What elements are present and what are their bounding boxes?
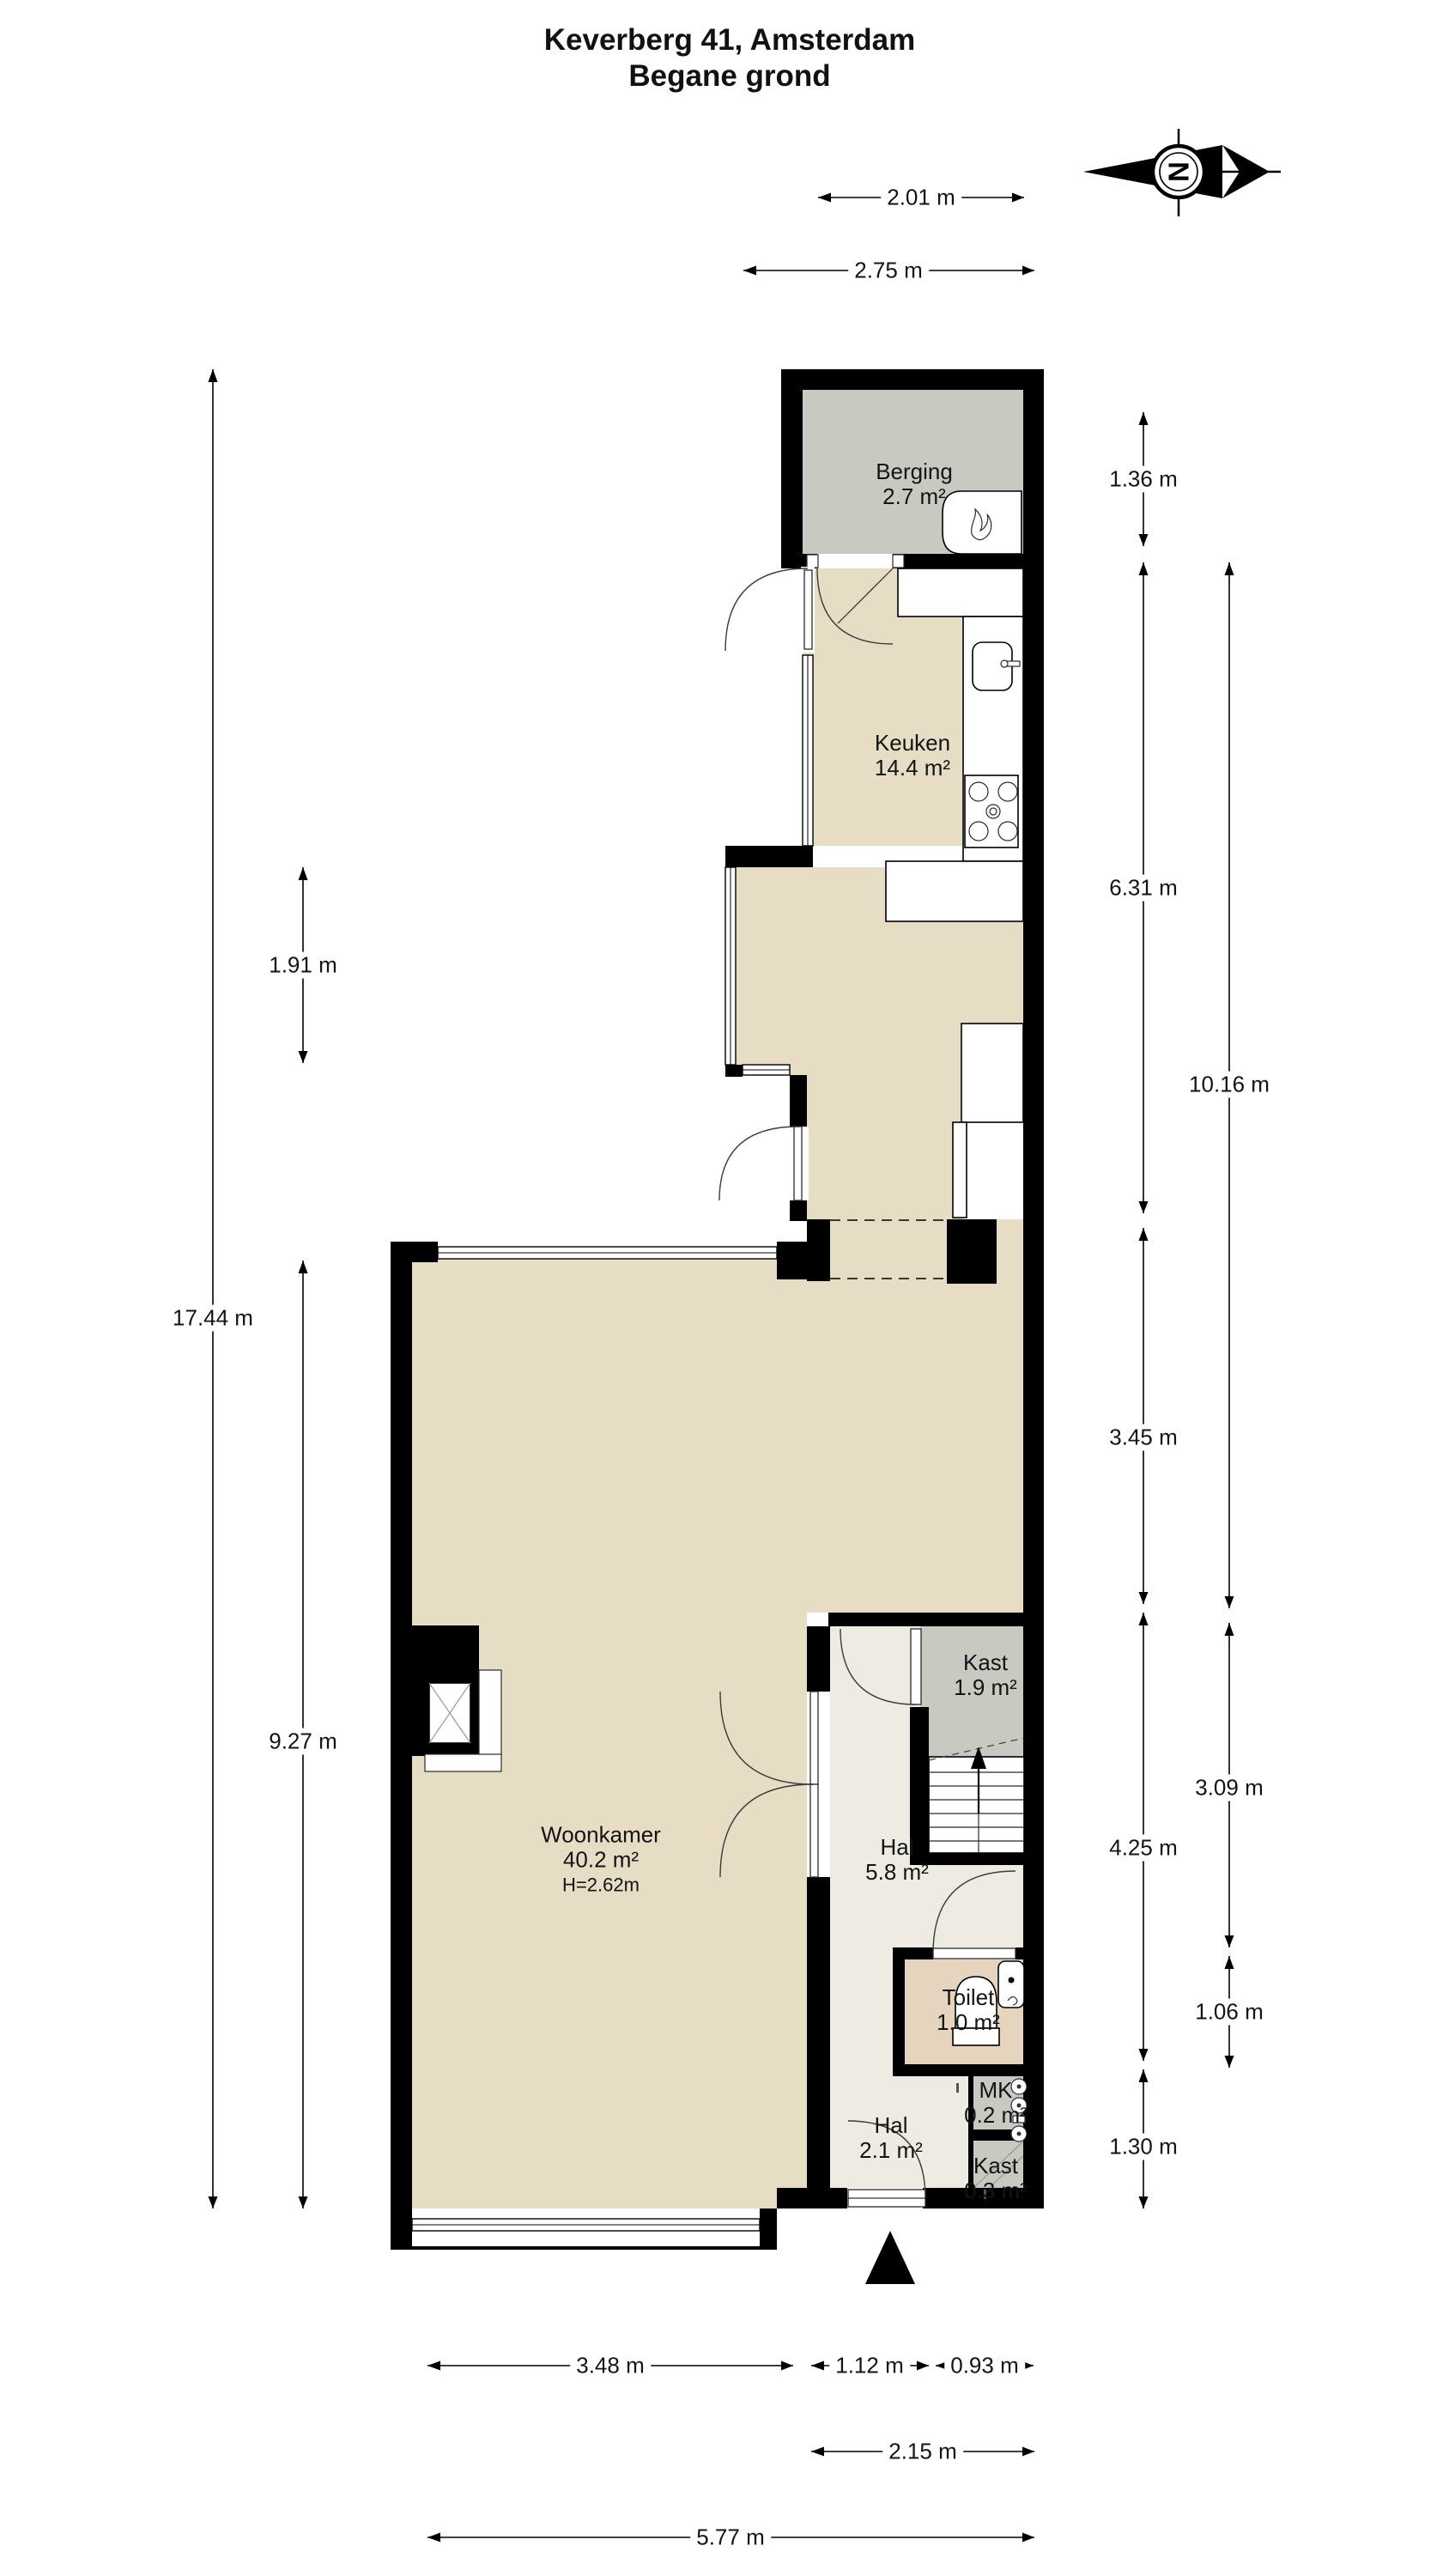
floors — [412, 390, 1024, 2208]
mk-door-tick — [956, 2083, 959, 2093]
floor-plan-page: N Keverberg 41, Amsterdam Begane grond B… — [0, 0, 1449, 2576]
page-title-line2: Begane grond — [628, 59, 830, 94]
dim-top-outer: 2.75 m — [848, 258, 929, 284]
heater-icon — [943, 491, 1022, 554]
room-label-berging: Berging2.7 m² — [876, 459, 953, 509]
dim-right-living-top: 3.45 m — [1103, 1425, 1184, 1451]
room-label-kast2: Kast0.3 m² — [964, 2154, 1028, 2203]
entrance-arrow-icon — [865, 2231, 915, 2284]
room-label-kast: Kast1.9 m² — [954, 1650, 1017, 1700]
dim-bottom-hall-total: 2.15 m — [882, 2439, 963, 2465]
room-label-hal: Hal5.8 m² — [865, 1835, 929, 1885]
room-label-mk: MK0.2 m² — [964, 2078, 1028, 2128]
dim-right-living-bottom: 4.25 m — [1103, 1835, 1184, 1862]
room-label-woonkamer: Woonkamer40.2 m² H=2.62m — [541, 1823, 661, 1898]
kitchen-appliance — [961, 1024, 1023, 1122]
double-door-leaf-bottom — [810, 1784, 818, 1877]
dim-bottom-closet: 0.93 m — [944, 2353, 1025, 2379]
dim-right-berging: 1.36 m — [1103, 466, 1184, 493]
compass-icon: N — [1083, 129, 1281, 216]
dim-right-toilet: 1.06 m — [1189, 1999, 1270, 2026]
kitchen-cabinet — [886, 861, 1023, 921]
dim-right-kitchen: 6.31 m — [1103, 875, 1184, 902]
kitchen-counter-top — [898, 568, 1023, 617]
closet-door-leaf — [911, 1629, 921, 1704]
compass-letter: N — [1163, 161, 1195, 182]
dim-top-inner: 2.01 m — [881, 185, 961, 211]
dim-left-window: 1.91 m — [263, 952, 343, 979]
washbasin-icon — [998, 1961, 1024, 2008]
room-label-toilet: Toilet1.0 m² — [937, 1985, 1000, 2035]
dim-left-living: 9.27 m — [263, 1728, 343, 1755]
room-label-keuken: Keuken14.4 m² — [875, 731, 950, 781]
double-door-leaf-top — [810, 1692, 818, 1784]
kitchen-tall-cabinet — [953, 1122, 967, 1218]
page-title-line1: Keverberg 41, Amsterdam — [544, 23, 916, 58]
dim-right-hall: 3.09 m — [1189, 1775, 1270, 1801]
stove-icon — [965, 775, 1018, 848]
dim-bottom-total: 5.77 m — [690, 2524, 771, 2551]
side-door-leaf — [794, 1127, 802, 1200]
dim-right-entrance: 1.30 m — [1103, 2134, 1184, 2160]
dim-right-kitchen-total: 10.16 m — [1183, 1072, 1276, 1098]
toilet-door-leaf — [933, 1948, 1016, 1959]
dim-bottom-hall: 1.12 m — [829, 2353, 910, 2379]
floor-plan-drawing: N — [0, 0, 1449, 2576]
room-label-hal2: Hal2.1 m² — [859, 2113, 923, 2163]
kitchen-door-leaf — [804, 570, 812, 649]
chimney-niche — [425, 1670, 501, 1771]
dim-bottom-living: 3.48 m — [570, 2353, 651, 2379]
dim-left-total: 17.44 m — [167, 1305, 259, 1332]
